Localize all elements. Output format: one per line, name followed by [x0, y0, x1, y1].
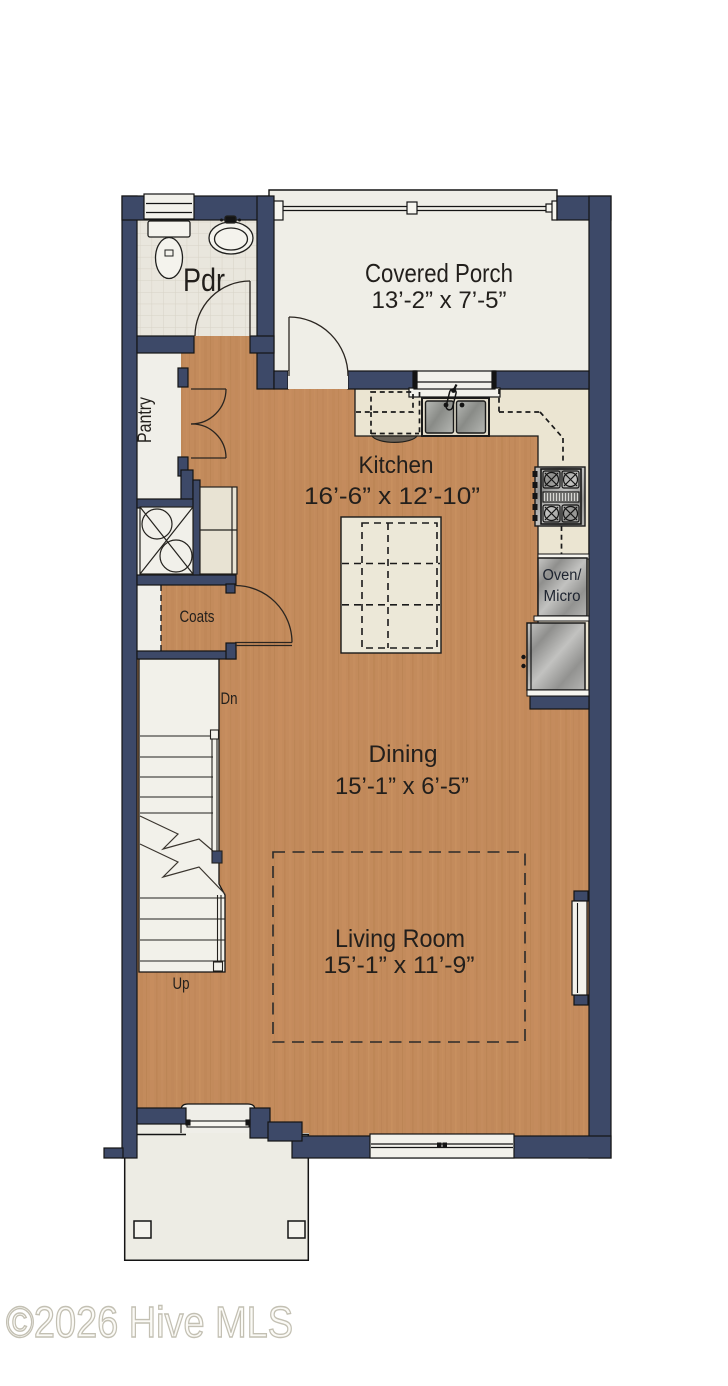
svg-text:Micro: Micro — [544, 588, 581, 605]
svg-text:16’-6” x 12’-10”: 16’-6” x 12’-10” — [304, 483, 480, 510]
svg-text:Up: Up — [173, 974, 190, 993]
svg-text:Pdr: Pdr — [183, 262, 225, 298]
svg-text:Dining: Dining — [369, 741, 438, 768]
svg-text:Kitchen: Kitchen — [359, 452, 434, 479]
svg-text:15’-1” x 11’-9”: 15’-1” x 11’-9” — [324, 952, 475, 979]
svg-text:Covered Porch: Covered Porch — [365, 258, 513, 288]
svg-text:Coats: Coats — [180, 607, 215, 626]
svg-text:13’-2” x 7’-5”: 13’-2” x 7’-5” — [372, 287, 507, 314]
svg-text:©2026 Hive MLS: ©2026 Hive MLS — [6, 1298, 293, 1347]
svg-text:15’-1” x 6’-5”: 15’-1” x 6’-5” — [335, 773, 469, 800]
svg-text:Dn: Dn — [221, 689, 238, 708]
svg-text:Living Room: Living Room — [335, 925, 465, 953]
svg-text:Pantry: Pantry — [135, 397, 156, 443]
svg-text:Oven/: Oven/ — [543, 567, 583, 584]
